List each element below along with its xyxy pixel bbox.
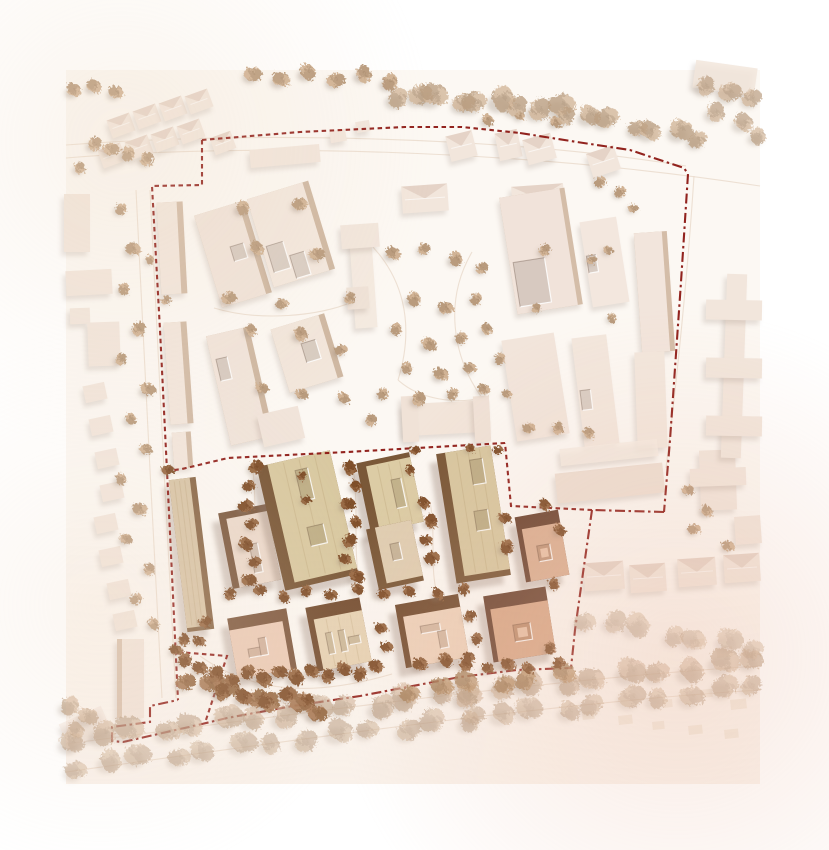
site-model-photo — [0, 0, 829, 850]
photo-tone-washes — [0, 0, 829, 850]
site-model-rendering — [0, 0, 829, 850]
